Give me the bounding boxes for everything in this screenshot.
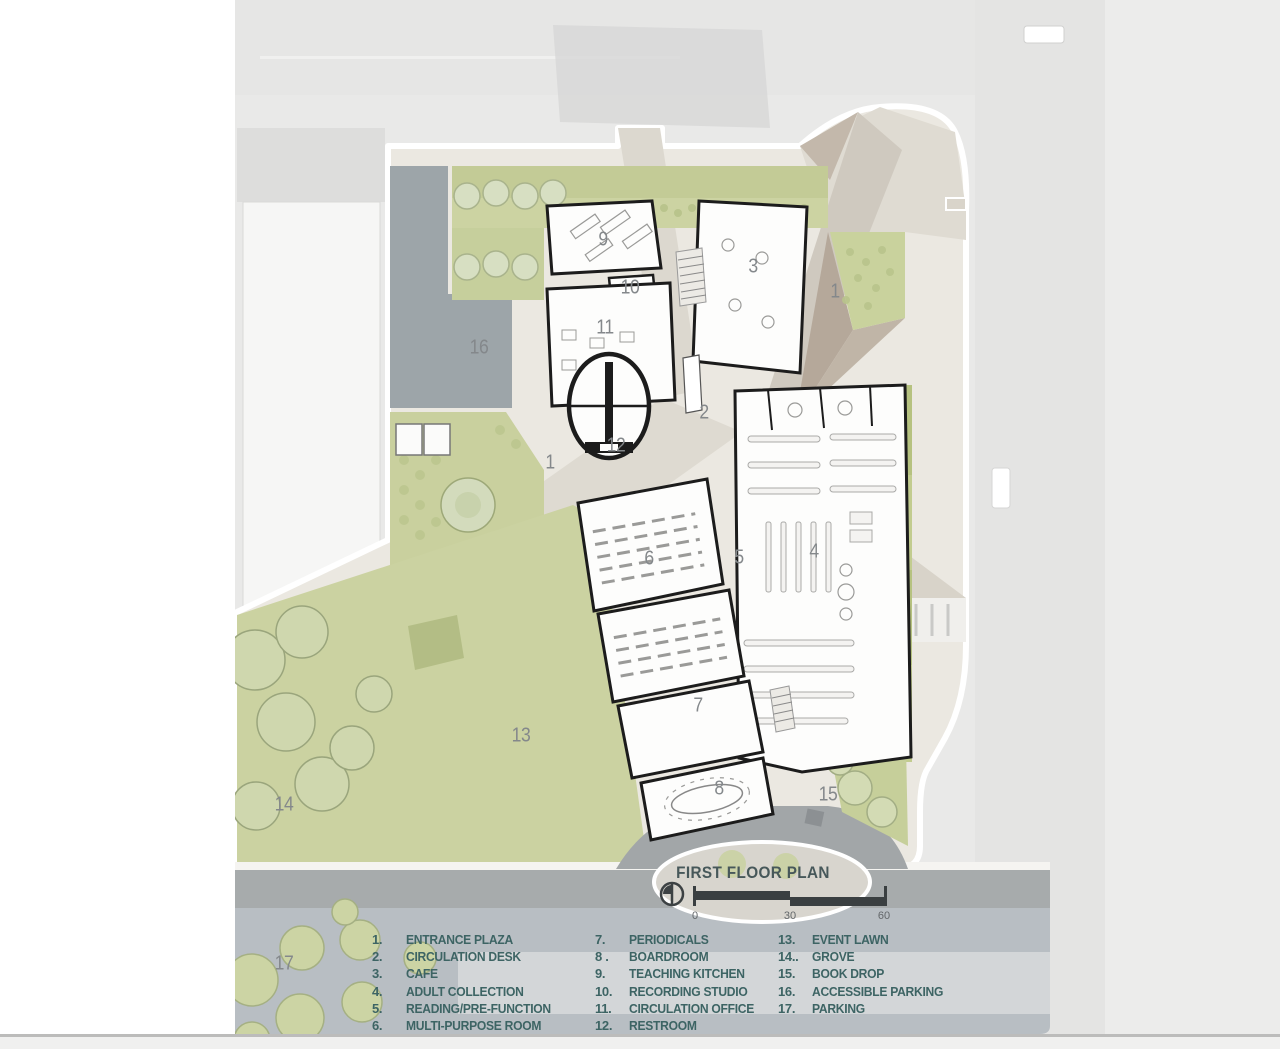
legend-item: 13.EVENT LAWN bbox=[778, 931, 953, 948]
street-band bbox=[235, 870, 1050, 908]
plan-label-2: 2 bbox=[699, 402, 708, 425]
plan-label-14: 14 bbox=[275, 794, 294, 817]
legend-item: 14..GROVE bbox=[778, 948, 953, 965]
footer-divider bbox=[0, 1034, 1280, 1037]
plan-label-5: 5 bbox=[734, 547, 743, 570]
legend-item-number: 13. bbox=[778, 932, 812, 947]
legend-item-number: 11. bbox=[595, 1001, 629, 1016]
plan-label-12: 12 bbox=[607, 435, 626, 458]
scale-tick-30: 30 bbox=[784, 910, 796, 922]
legend-item-label: CIRCULATION DESK bbox=[406, 949, 521, 964]
legend-item-label: RESTROOM bbox=[629, 1018, 697, 1033]
legend-item: 8 .BOARDROOM bbox=[595, 948, 763, 965]
plan-label-9: 9 bbox=[598, 229, 607, 252]
legend-item: 7.PERIODICALS bbox=[595, 931, 763, 948]
legend-item: 3.CAFE bbox=[372, 965, 562, 982]
legend-item-label: READING/PRE-FUNCTION bbox=[406, 1001, 551, 1016]
legend-item-number: 6. bbox=[372, 1018, 406, 1033]
legend-item-label: TEACHING KITCHEN bbox=[629, 966, 745, 981]
plan-label-7: 7 bbox=[693, 695, 702, 718]
plan-label-16: 16 bbox=[470, 337, 489, 360]
legend-item: 15.BOOK DROP bbox=[778, 965, 953, 982]
plan-label-1: 1 bbox=[545, 452, 554, 475]
legend-item-label: BOOK DROP bbox=[812, 966, 884, 981]
plan-label-11: 11 bbox=[596, 317, 613, 340]
scale-tick-60: 60 bbox=[878, 910, 890, 922]
legend-item-number: 17. bbox=[778, 1001, 812, 1016]
footer-strip bbox=[0, 1037, 1280, 1049]
legend-item-number: 8 . bbox=[595, 949, 629, 964]
legend-item: 17.PARKING bbox=[778, 1000, 953, 1017]
plan-label-15: 15 bbox=[819, 784, 838, 807]
legend-item: 4.ADULT COLLECTION bbox=[372, 983, 562, 1000]
legend-item: 16.ACCESSIBLE PARKING bbox=[778, 983, 953, 1000]
legend-item-number: 14.. bbox=[778, 949, 812, 964]
legend-item-number: 2. bbox=[372, 949, 406, 964]
plan-label-1: 1 bbox=[830, 281, 839, 304]
plan-label-3: 3 bbox=[748, 256, 757, 279]
legend-item-label: MULTI-PURPOSE ROOM bbox=[406, 1018, 541, 1033]
plan-label-6: 6 bbox=[644, 548, 653, 571]
legend-item-number: 4. bbox=[372, 984, 406, 999]
legend-item: 12.RESTROOM bbox=[595, 1017, 763, 1034]
legend-item-number: 7. bbox=[595, 932, 629, 947]
scale-tick-0: 0 bbox=[692, 910, 698, 922]
legend-item-label: PERIODICALS bbox=[629, 932, 709, 947]
steps bbox=[946, 198, 966, 210]
legend-item-number: 15. bbox=[778, 966, 812, 981]
legend-item-label: ENTRANCE PLAZA bbox=[406, 932, 513, 947]
site-plan-canvas bbox=[0, 0, 1280, 1049]
plan-label-8: 8 bbox=[714, 778, 723, 801]
plan-label-17: 17 bbox=[275, 953, 294, 976]
legend-item-number: 9. bbox=[595, 966, 629, 981]
car-top bbox=[1024, 26, 1064, 43]
parking-stall bbox=[424, 424, 450, 455]
legend-item: 6.MULTI-PURPOSE ROOM bbox=[372, 1017, 562, 1034]
legend-item-number: 10. bbox=[595, 984, 629, 999]
legend-item-number: 1. bbox=[372, 932, 406, 947]
plan-title: FIRST FLOOR PLAN bbox=[676, 863, 830, 883]
legend-item-number: 5. bbox=[372, 1001, 406, 1016]
legend-item-number: 12. bbox=[595, 1018, 629, 1033]
legend-item: 5.READING/PRE-FUNCTION bbox=[372, 1000, 562, 1017]
legend-item: 2.CIRCULATION DESK bbox=[372, 948, 562, 965]
legend-item-number: 16. bbox=[778, 984, 812, 999]
legend-item: 9.TEACHING KITCHEN bbox=[595, 965, 763, 982]
legend-item-label: BOARDROOM bbox=[629, 949, 708, 964]
legend-item-label: EVENT LAWN bbox=[812, 932, 888, 947]
legend-column-3: 13.EVENT LAWN14..GROVE15.BOOK DROP16.ACC… bbox=[778, 931, 953, 1017]
legend-item: 1.ENTRANCE PLAZA bbox=[372, 931, 562, 948]
legend-column-2: 7.PERIODICALS8 .BOARDROOM9.TEACHING KITC… bbox=[595, 931, 763, 1034]
legend-item: 11.CIRCULATION OFFICE bbox=[595, 1000, 763, 1017]
plan-label-4: 4 bbox=[809, 541, 818, 564]
plan-label-10: 10 bbox=[621, 277, 640, 300]
legend-column-1: 1.ENTRANCE PLAZA2.CIRCULATION DESK3.CAFE… bbox=[372, 931, 562, 1034]
plan-label-13: 13 bbox=[512, 725, 531, 748]
legend-item-label: GROVE bbox=[812, 949, 854, 964]
legend-item-label: ACCESSIBLE PARKING bbox=[812, 984, 943, 999]
legend-item-label: ADULT COLLECTION bbox=[406, 984, 524, 999]
crosswalk bbox=[905, 598, 966, 642]
car-right bbox=[992, 468, 1010, 508]
parking-stall bbox=[396, 424, 422, 455]
aerial-roof bbox=[553, 25, 770, 128]
page-left-margin bbox=[0, 0, 235, 1034]
map-area bbox=[225, 0, 1280, 1049]
legend-item: 10.RECORDING STUDIO bbox=[595, 983, 763, 1000]
legend-item-label: CAFE bbox=[406, 966, 438, 981]
legend-item-label: PARKING bbox=[812, 1001, 865, 1016]
legend-item-label: RECORDING STUDIO bbox=[629, 984, 747, 999]
legend-item-label: CIRCULATION OFFICE bbox=[629, 1001, 754, 1016]
legend-item-number: 3. bbox=[372, 966, 406, 981]
